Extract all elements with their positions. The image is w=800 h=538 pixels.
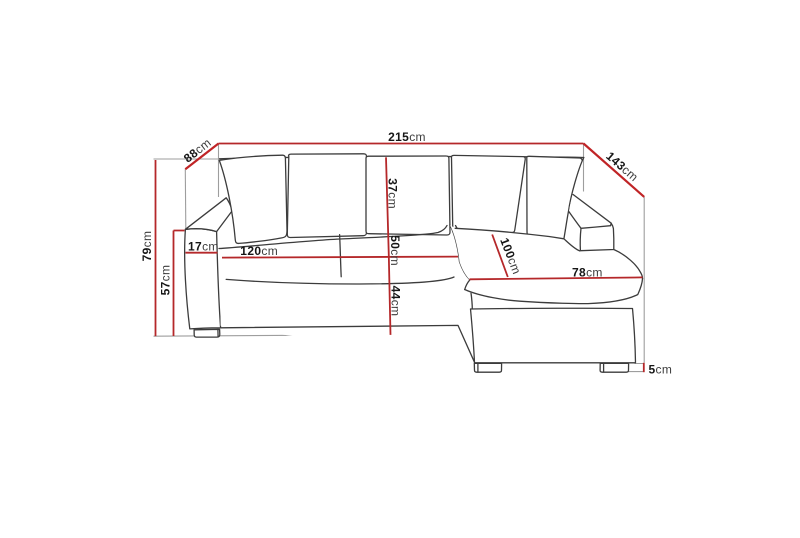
svg-text:57cm: 57cm [159,265,173,296]
svg-text:5cm: 5cm [649,363,673,377]
svg-text:215cm: 215cm [388,130,426,144]
svg-text:44cm: 44cm [388,286,402,317]
svg-text:17cm: 17cm [188,240,219,254]
svg-text:37cm: 37cm [386,178,400,209]
svg-text:50cm: 50cm [388,235,402,266]
svg-text:79cm: 79cm [140,231,154,262]
svg-text:120cm: 120cm [240,244,278,258]
svg-text:78cm: 78cm [572,266,603,280]
